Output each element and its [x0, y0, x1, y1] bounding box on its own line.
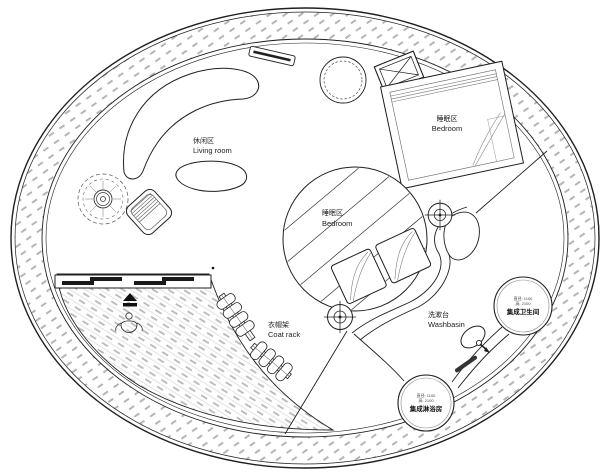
living-room-label-en: Living room	[193, 146, 232, 155]
floor-plan: 直径: 1100 高: 2100 集成卫生间 直径: 1100 高: 2100 …	[0, 0, 611, 473]
sliding-door	[55, 275, 211, 288]
living-room-label-zh: 休闲区	[193, 136, 214, 145]
partition-corridor-inner	[354, 334, 404, 381]
bedroom-center-label-zh: 睡眠区	[322, 209, 343, 217]
washbasin-label-zh: 洗漱台	[428, 310, 449, 319]
bathroom-pod: 直径: 1100 高: 2100 集成卫生间	[494, 277, 552, 335]
bedroom-upper-label-zh: 睡眠区	[437, 115, 458, 123]
shower-pod-height: 高: 2100	[418, 397, 434, 403]
floor-plan-drawing: 直径: 1100 高: 2100 集成卫生间 直径: 1100 高: 2100 …	[0, 0, 611, 473]
bathroom-pod-label: 集成卫生间	[506, 307, 540, 316]
coat-rack-label-en: Coat rack	[268, 330, 300, 339]
living-room-sofa	[124, 68, 259, 179]
towel-bar	[454, 355, 478, 373]
coat-rack-label-zh: 衣帽架	[268, 320, 289, 329]
shower-pod: 直径: 1100 高: 2100 集成淋浴房	[398, 375, 454, 431]
bedroom-center-label-en: Bedroom	[322, 219, 352, 228]
door-panel	[134, 281, 166, 285]
door-panel	[62, 281, 94, 285]
reference-dot	[212, 267, 215, 270]
door-panel	[162, 277, 194, 281]
shower-pod-label: 集成淋浴房	[409, 404, 443, 413]
wall-shelf	[248, 46, 295, 66]
bedroom-upper-label-en: Bedroom	[432, 124, 462, 133]
armchair	[124, 187, 175, 238]
washbasin-label-en: Washbasin	[428, 320, 465, 329]
coffee-table	[176, 161, 247, 191]
round-table	[320, 57, 366, 103]
door-panel	[90, 277, 122, 281]
terrace-deck	[57, 274, 333, 430]
bathroom-pod-height: 高: 2100	[515, 300, 531, 306]
potted-plant-icon	[77, 173, 128, 224]
partition-coatrack-corridor	[285, 331, 347, 434]
